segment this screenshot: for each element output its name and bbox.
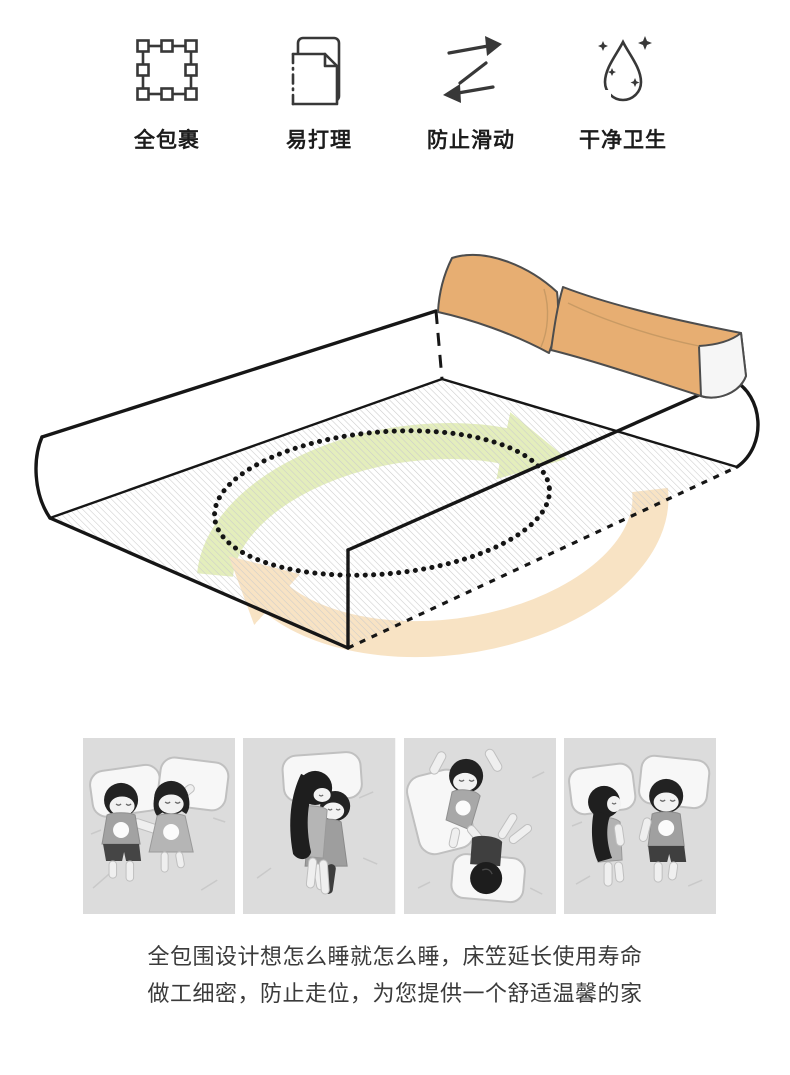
swap-arrows-icon <box>433 30 509 114</box>
feature-anti-slip: 防止滑动 <box>395 30 547 154</box>
feature-row: 全包裹 易打理 防止滑动 <box>91 30 699 154</box>
feature-label: 干净卫生 <box>547 124 699 154</box>
pillows <box>438 255 746 398</box>
feature-label: 易打理 <box>243 124 395 154</box>
caption-line-1: 全包围设计想怎么睡就怎么睡，床笠延长使用寿命 <box>0 938 790 975</box>
feature-hygienic: 干净卫生 <box>547 30 699 154</box>
pillow-left <box>438 255 558 353</box>
selection-square-icon <box>129 30 205 114</box>
sleep-pose-strip <box>83 738 716 914</box>
feature-label: 全包裹 <box>91 124 243 154</box>
sleep-panel-1 <box>83 738 235 914</box>
sleep-panel-3 <box>404 738 556 914</box>
bed-illustration <box>0 245 790 710</box>
droplet-sparkles-icon <box>585 30 661 114</box>
sleep-panel-2 <box>243 738 395 914</box>
hidden-corner-edge <box>436 311 442 379</box>
caption-line-2: 做工细密，防止走位，为您提供一个舒适温馨的家 <box>0 975 790 1012</box>
feature-full-wrap: 全包裹 <box>91 30 243 154</box>
caption: 全包围设计想怎么睡就怎么睡，床笠延长使用寿命 做工细密，防止走位，为您提供一个舒… <box>0 938 790 1012</box>
feature-easy-care: 易打理 <box>243 30 395 154</box>
sleep-panel-4 <box>564 738 716 914</box>
document-sheet-icon <box>281 30 357 114</box>
feature-label: 防止滑动 <box>395 124 547 154</box>
